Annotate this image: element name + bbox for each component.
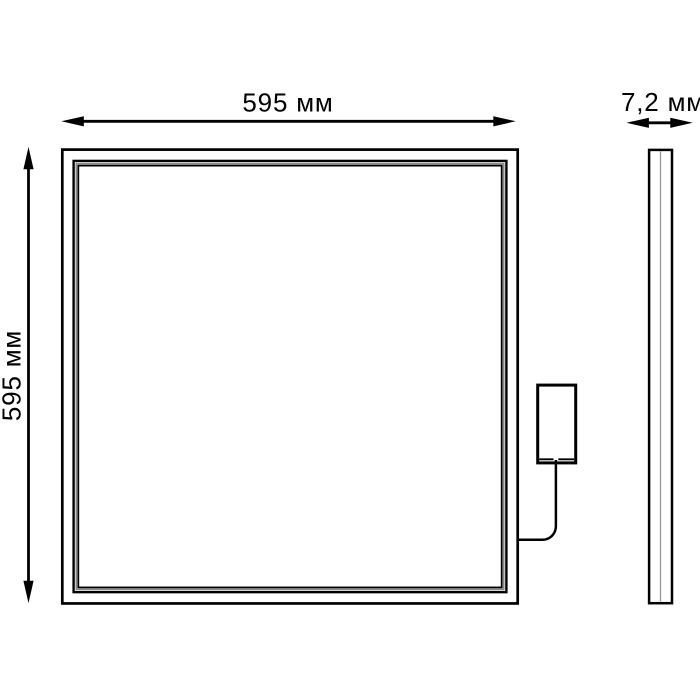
svg-text:595 мм: 595 мм: [0, 330, 27, 421]
svg-text:7,2 мм: 7,2 мм: [621, 87, 700, 117]
svg-text:595 мм: 595 мм: [242, 88, 333, 118]
